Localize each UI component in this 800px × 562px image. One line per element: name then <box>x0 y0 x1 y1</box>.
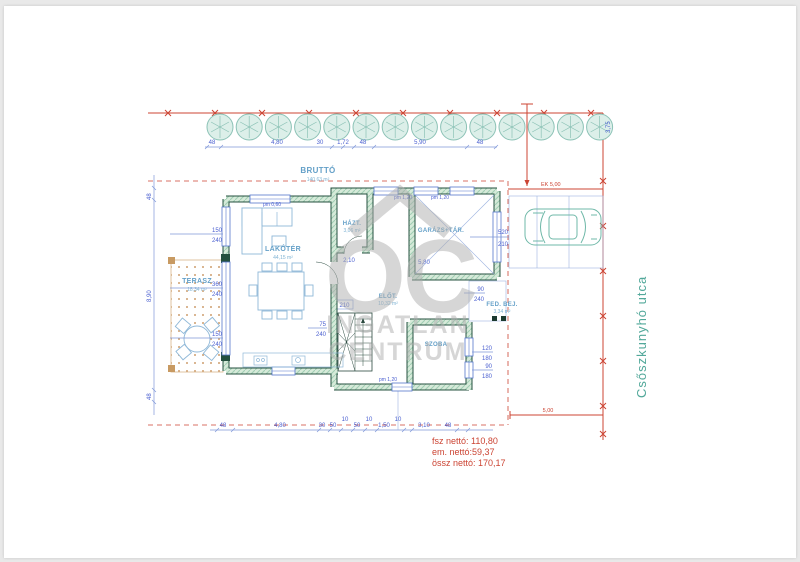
dim-top-6: 48 <box>477 140 484 146</box>
room-area-lakoter: 44,15 m² <box>273 255 293 261</box>
dim-right-lot: 3,75 <box>606 121 612 133</box>
svg-text:240: 240 <box>212 292 223 298</box>
svg-text:150: 150 <box>212 332 223 338</box>
dim-left-tick-bottom: 48 <box>147 393 153 400</box>
svg-text:120: 120 <box>482 346 493 352</box>
room-area-brutto: 140,63 m² <box>307 177 330 183</box>
dim-bot-10: 48 <box>445 423 452 429</box>
dim-left-tick-top: 48 <box>147 193 153 200</box>
porch-column <box>501 316 506 321</box>
ek-dimension-label: EK 5,00 <box>541 182 561 188</box>
svg-text:180: 180 <box>482 374 493 380</box>
driveway <box>509 196 603 268</box>
svg-text:240: 240 <box>212 342 223 348</box>
dim-bot-7: 1,50 <box>378 423 390 429</box>
tree-row <box>207 114 613 140</box>
dim-left-total: 8,90 <box>147 290 153 302</box>
svg-text:180: 180 <box>482 356 493 362</box>
setback-dimension-label: 5,00 <box>543 408 554 414</box>
room-label-brutto: BRUTTÓ <box>300 166 335 175</box>
dim-bot-8: 10 <box>395 417 402 423</box>
car-icon <box>525 209 601 245</box>
summary-upper-net: em. nettó:59,37 <box>432 447 495 457</box>
dim-bot-9: 3,10 <box>418 423 430 429</box>
summary-total-net: össz nettó: 170,17 <box>432 458 506 468</box>
svg-text:240: 240 <box>212 238 223 244</box>
dim-top-4: 48 <box>360 140 367 146</box>
dim-bot-3: 50 <box>330 423 337 429</box>
floor-plan-canvas: EK 5,00 5,00 48 4,80 30 1,72 48 5,90 48 … <box>0 0 800 562</box>
dim-top-5: 5,90 <box>414 140 426 146</box>
dim-top-3: 1,72 <box>337 140 349 146</box>
dim-bot-2: 30 <box>319 423 326 429</box>
svg-text:210: 210 <box>498 242 509 248</box>
summary-floor-net: fsz nettó: 110,80 <box>432 436 498 446</box>
dim-bot-1: 4,80 <box>274 423 286 429</box>
dim-top-0: 48 <box>209 140 216 146</box>
window-dim-90-180: 90 180 <box>472 364 493 380</box>
porch-column <box>492 316 497 321</box>
area-summary: fsz nettó: 110,80 em. nettó:59,37 össz n… <box>432 436 506 468</box>
watermark-line2: CENTRUM <box>329 338 468 366</box>
street-name-label: Csőszkunyhó utca <box>634 276 649 398</box>
window-dim-150-240: 150 240 <box>170 228 223 244</box>
pm-label-120b: pm 1,20 <box>431 195 449 201</box>
watermark: OC INGATLAN CENTRUM <box>325 193 476 366</box>
pm-label-120c: pm 1,20 <box>379 377 397 383</box>
dim-top-1: 4,80 <box>271 140 283 146</box>
dining-table <box>249 263 313 319</box>
svg-text:90: 90 <box>485 364 492 370</box>
svg-text:360: 360 <box>212 282 223 288</box>
dim-bot-6: 10 <box>366 417 373 423</box>
window-dim-520-210: 520 210 <box>470 230 509 248</box>
svg-text:520: 520 <box>498 230 509 236</box>
svg-text:240: 240 <box>474 297 485 303</box>
room-label-fedbej: FED. BEJ. <box>486 302 517 308</box>
room-label-lakoter: LAKÓTÉR <box>265 244 301 253</box>
dim-bot-5: 50 <box>354 423 361 429</box>
window-dim-120-180: 120 180 <box>472 346 493 362</box>
dim-bot-0: 48 <box>220 423 227 429</box>
svg-text:150: 150 <box>212 228 223 234</box>
watermark-line1: INGATLAN <box>326 311 469 339</box>
room-area-terasz: 18,34 m² <box>187 287 207 293</box>
dim-bot-4: 10 <box>342 417 349 423</box>
room-area-fedbej: 3,34 m² <box>494 309 511 315</box>
pm-label-060: pm 0,60 <box>263 202 281 208</box>
svg-text:90: 90 <box>477 287 484 293</box>
dim-top-2: 30 <box>317 140 324 146</box>
room-label-terasz: TERASZ <box>182 278 212 285</box>
